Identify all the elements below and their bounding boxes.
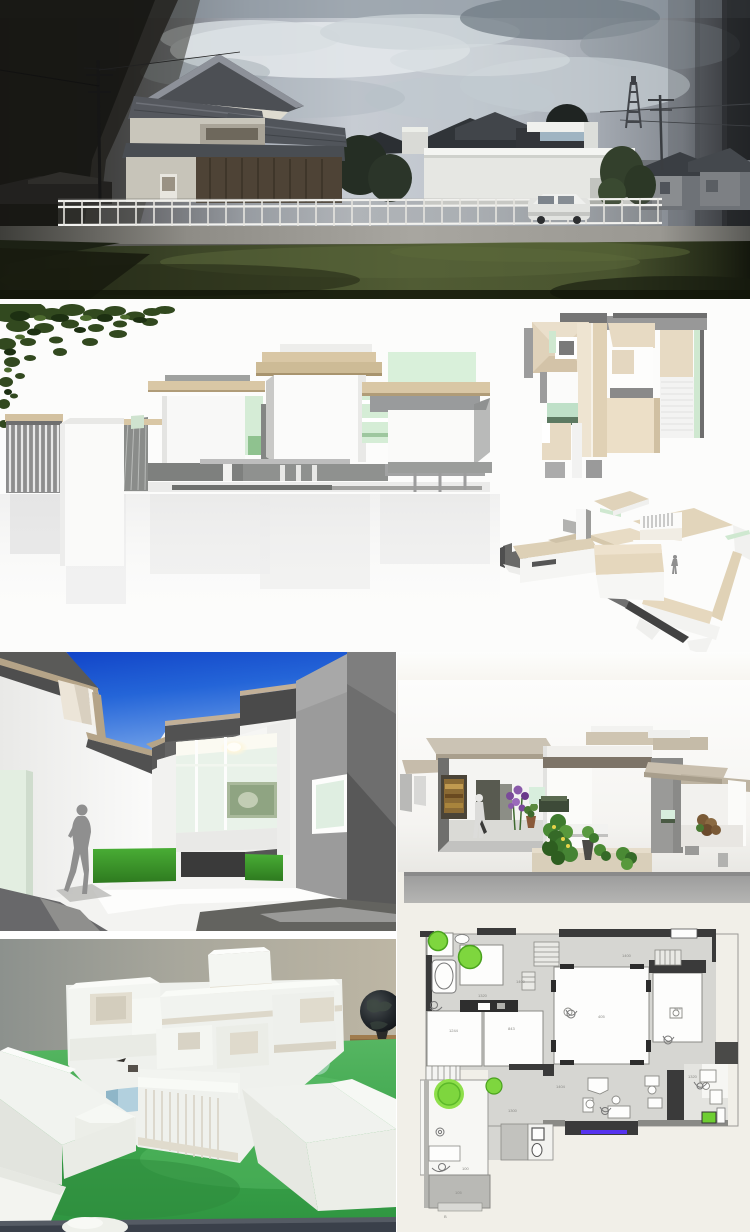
svg-text:944: 944 xyxy=(674,1006,681,1011)
svg-text:1404: 1404 xyxy=(556,1084,566,1089)
svg-text:1300: 1300 xyxy=(508,1108,518,1113)
svg-text:1320: 1320 xyxy=(688,1074,698,1079)
svg-text:405: 405 xyxy=(598,1014,605,1019)
svg-text:1400: 1400 xyxy=(622,953,632,958)
svg-text:100: 100 xyxy=(462,1166,469,1171)
svg-text:1244: 1244 xyxy=(449,1028,459,1033)
svg-text:105: 105 xyxy=(455,1190,462,1195)
svg-text:1400: 1400 xyxy=(516,979,526,984)
svg-text:843: 843 xyxy=(508,1026,515,1031)
svg-text:B: B xyxy=(444,1214,447,1219)
svg-text:1320: 1320 xyxy=(478,993,488,998)
